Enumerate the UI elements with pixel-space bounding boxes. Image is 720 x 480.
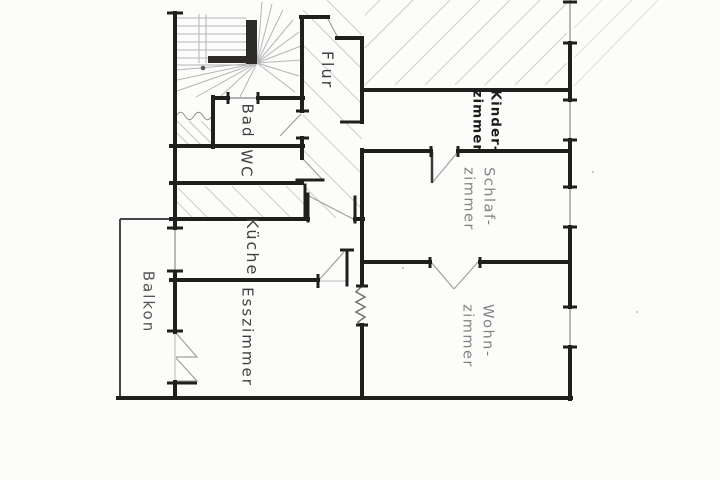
walls-bold [118, 13, 571, 399]
staircase-newel-wall [201, 20, 257, 70]
floor-plan-page: Flur Bad WC Küche Esszimmer Balkon Kinde… [0, 0, 720, 480]
floor-plan-drawing [0, 0, 720, 480]
balcony-outline [120, 219, 175, 397]
staircase-break-line [176, 112, 212, 120]
hatching-flur [303, 0, 362, 218]
staircase-lower-hatch [177, 121, 212, 147]
window-lines [175, 0, 570, 347]
zigzag-opening [356, 287, 365, 326]
hatching-corridor-strip [175, 186, 305, 218]
hatching-beyond-east-wall [574, 0, 658, 86]
threshold-lines [175, 281, 346, 382]
walls-medium-stubs [297, 180, 355, 285]
hatching-top-right-area [365, 0, 567, 85]
door-swing-lines [176, 17, 478, 381]
scan-specks [402, 171, 638, 313]
